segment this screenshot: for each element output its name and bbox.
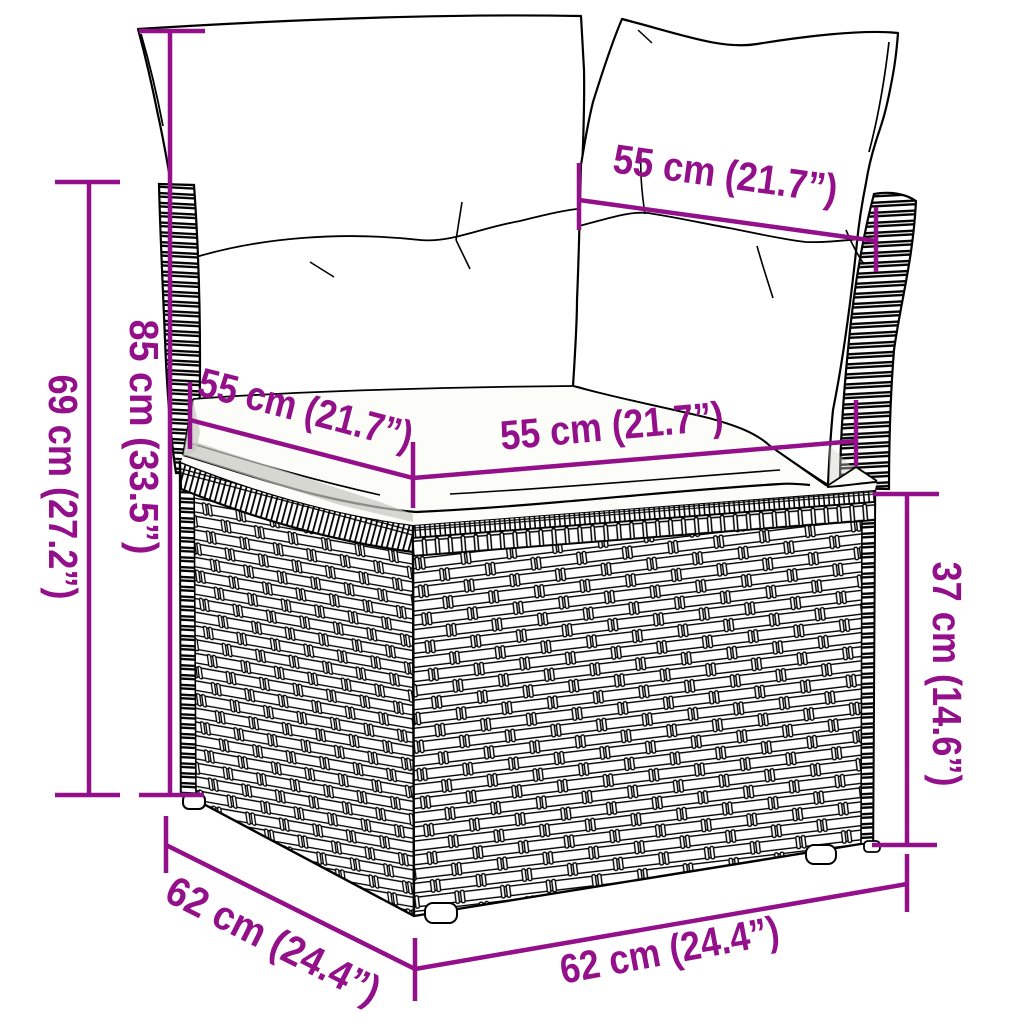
svg-text:85 cm (33.5”): 85 cm (33.5”) (121, 320, 167, 555)
svg-text:69 cm (27.2”): 69 cm (27.2”) (40, 375, 86, 600)
svg-text:37 cm (14.6”): 37 cm (14.6”) (924, 562, 970, 787)
